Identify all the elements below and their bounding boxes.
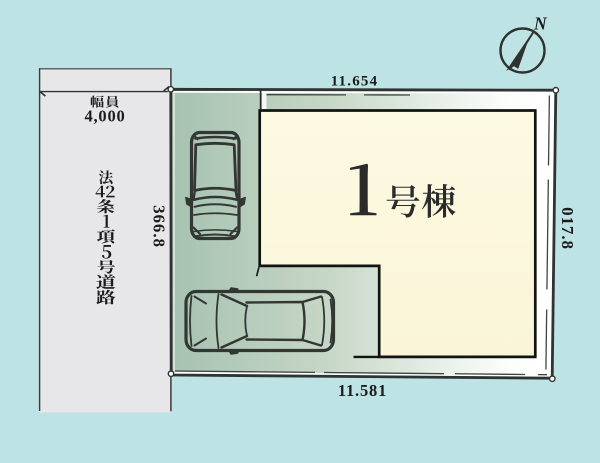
svg-text:366.8: 366.8 xyxy=(149,205,168,248)
svg-text:N: N xyxy=(533,14,548,34)
svg-text:11.654: 11.654 xyxy=(331,74,379,90)
svg-text:4,000: 4,000 xyxy=(84,107,125,126)
svg-text:11.581: 11.581 xyxy=(338,381,387,400)
svg-text:017.8: 017.8 xyxy=(558,207,577,250)
